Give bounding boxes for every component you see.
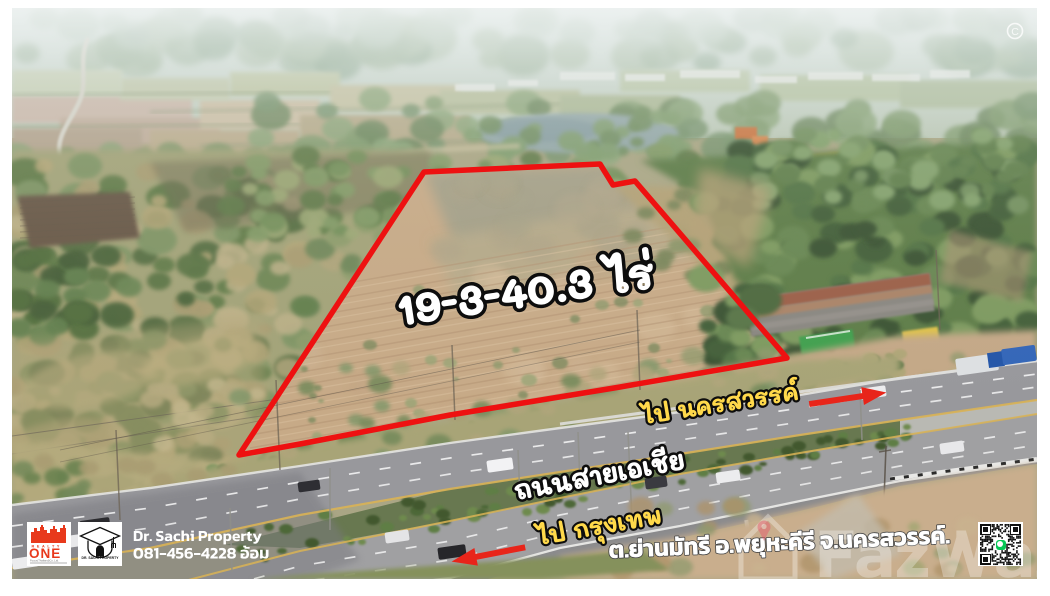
svg-text:Focus(Thailand)Co.,Ltd.: Focus(Thailand)Co.,Ltd. [30,559,59,563]
svg-text:C: C [1011,26,1019,38]
svg-text:DR. SACHI PROPERTY: DR. SACHI PROPERTY [82,556,120,560]
